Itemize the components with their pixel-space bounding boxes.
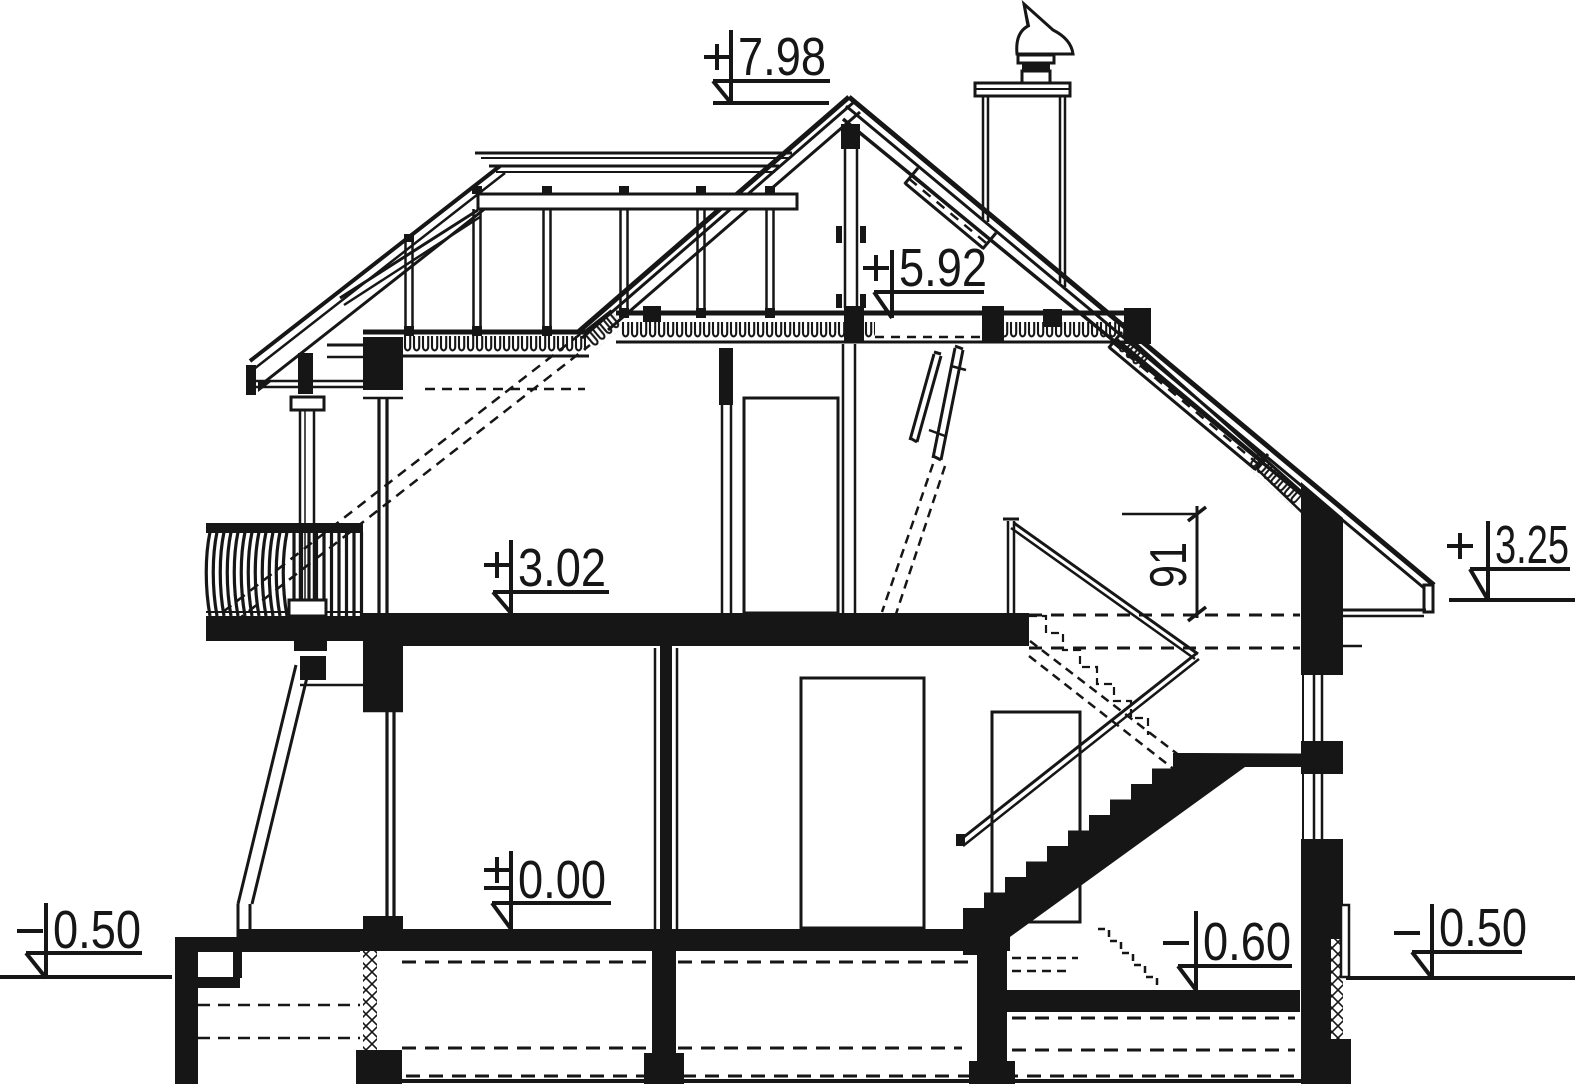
svg-text:5.92: 5.92	[899, 238, 987, 298]
svg-text:0.60: 0.60	[1203, 912, 1291, 972]
svg-text:0.50: 0.50	[1439, 898, 1527, 958]
svg-text:3.02: 3.02	[518, 538, 606, 598]
svg-text:7.98: 7.98	[738, 27, 826, 87]
svg-text:91: 91	[1140, 542, 1198, 588]
svg-text:3.25: 3.25	[1495, 515, 1569, 575]
